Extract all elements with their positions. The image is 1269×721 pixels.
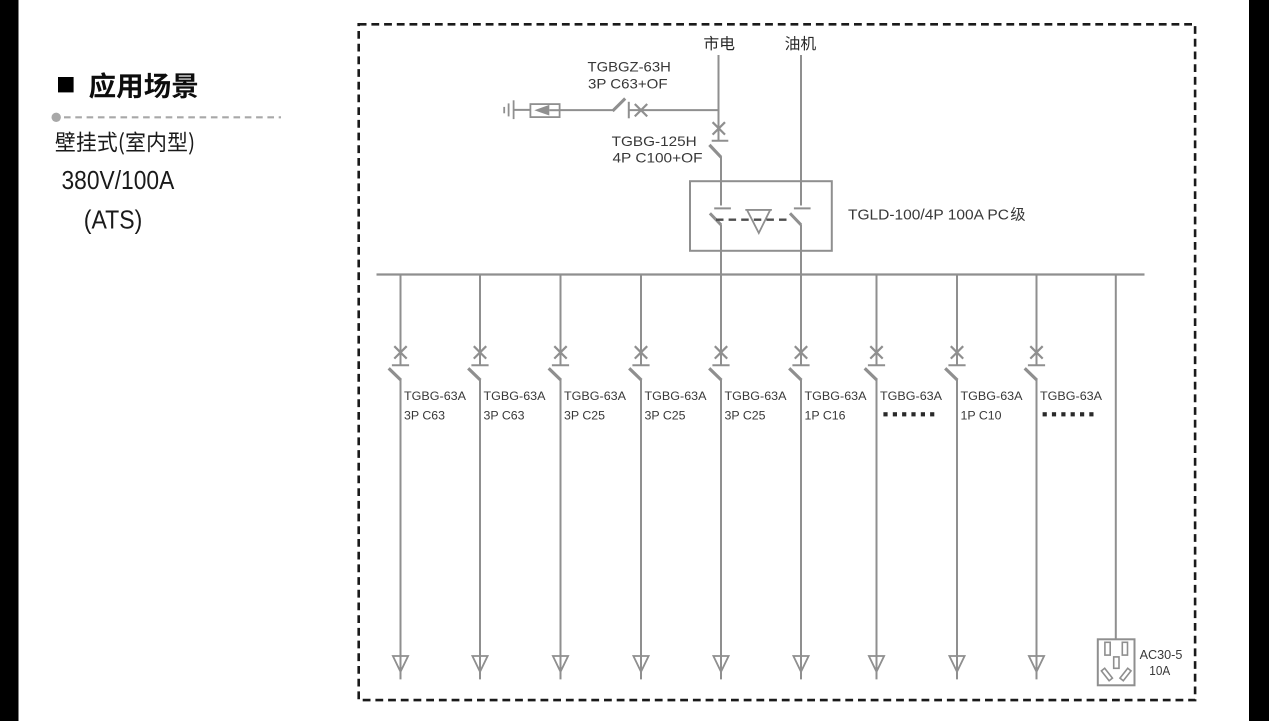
svg-text:3P C25: 3P C25 <box>645 409 686 423</box>
svg-text:TGBG-63A: TGBG-63A <box>645 389 707 403</box>
svg-text:TGBG-63A: TGBG-63A <box>725 389 787 403</box>
svg-text:TGBG-63A: TGBG-63A <box>484 389 546 403</box>
svg-text:1P C10: 1P C10 <box>961 409 1002 423</box>
svg-text:TGBG-63A: TGBG-63A <box>880 389 942 403</box>
svg-text:3P C63: 3P C63 <box>404 409 445 423</box>
svg-text:3P C25: 3P C25 <box>564 409 605 423</box>
svg-text:TGBG-63A: TGBG-63A <box>564 389 626 403</box>
svg-text:3P C63: 3P C63 <box>484 409 525 423</box>
svg-text:TGBG-63A: TGBG-63A <box>805 389 867 403</box>
svg-text:3P C25: 3P C25 <box>725 409 766 423</box>
svg-text:3P C63+OF: 3P C63+OF <box>588 75 668 91</box>
svg-text:(ATS): (ATS) <box>84 206 143 234</box>
svg-text:TGBG-63A: TGBG-63A <box>1040 389 1102 403</box>
svg-text:10A: 10A <box>1149 664 1171 678</box>
svg-text:AC30-5: AC30-5 <box>1140 648 1183 662</box>
svg-text:TGLD-100/4P 100A PC: TGLD-100/4P 100A PC <box>848 208 1009 224</box>
svg-text:TGBG-63A: TGBG-63A <box>961 389 1023 403</box>
svg-text:380V/100A: 380V/100A <box>62 167 175 195</box>
svg-text:TGBGZ-63H: TGBGZ-63H <box>588 58 671 74</box>
svg-text:TGBG-125H: TGBG-125H <box>612 133 697 149</box>
svg-text:1P C16: 1P C16 <box>805 409 846 423</box>
svg-text:TGBG-63A: TGBG-63A <box>404 389 466 403</box>
svg-text:4P C100+OF: 4P C100+OF <box>613 150 703 166</box>
